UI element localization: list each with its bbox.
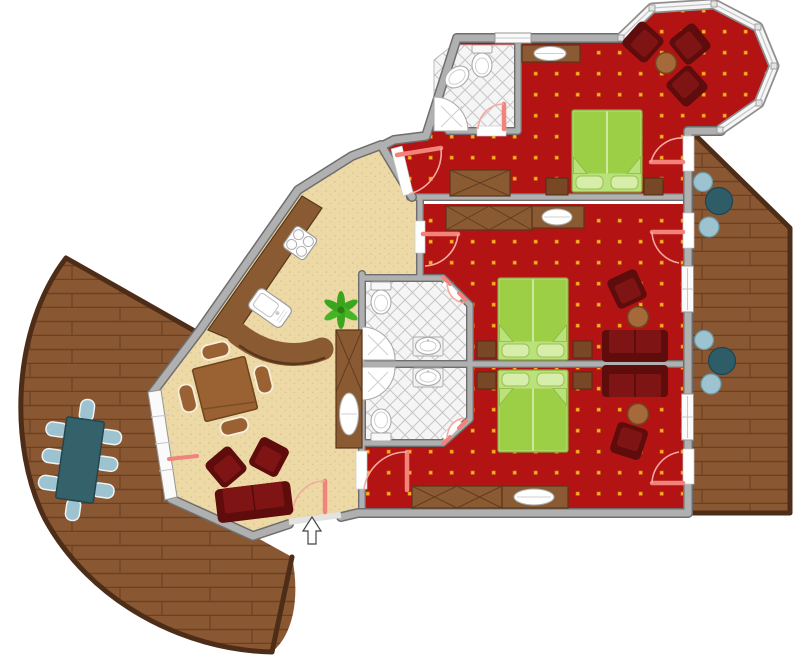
vanity-sideboard	[522, 45, 580, 62]
wardrobe	[450, 170, 510, 196]
washbasin	[413, 337, 443, 356]
nightstand	[644, 178, 663, 195]
floor-plan	[0, 0, 800, 659]
nightstand	[477, 372, 496, 389]
nightstand	[546, 178, 568, 195]
sofa	[602, 365, 668, 397]
vanity-sideboard	[532, 206, 584, 228]
washbasin	[413, 368, 443, 387]
nightstand	[573, 341, 592, 358]
toilet	[371, 409, 391, 441]
round-side-table	[628, 404, 649, 425]
balcony-right	[686, 126, 790, 513]
toilet	[371, 282, 391, 314]
double-bed	[572, 110, 642, 192]
nightstand	[573, 372, 592, 389]
double-bed	[498, 278, 568, 360]
round-side-table	[628, 307, 649, 328]
nightstand	[477, 341, 496, 358]
wardrobe	[446, 206, 532, 230]
toilet	[472, 45, 492, 77]
round-side-table	[656, 53, 677, 74]
wardrobe	[412, 486, 502, 508]
tv-sideboard-living	[336, 330, 362, 448]
sofa	[602, 330, 668, 362]
double-bed	[498, 370, 568, 452]
tv-sideboard	[502, 486, 568, 508]
